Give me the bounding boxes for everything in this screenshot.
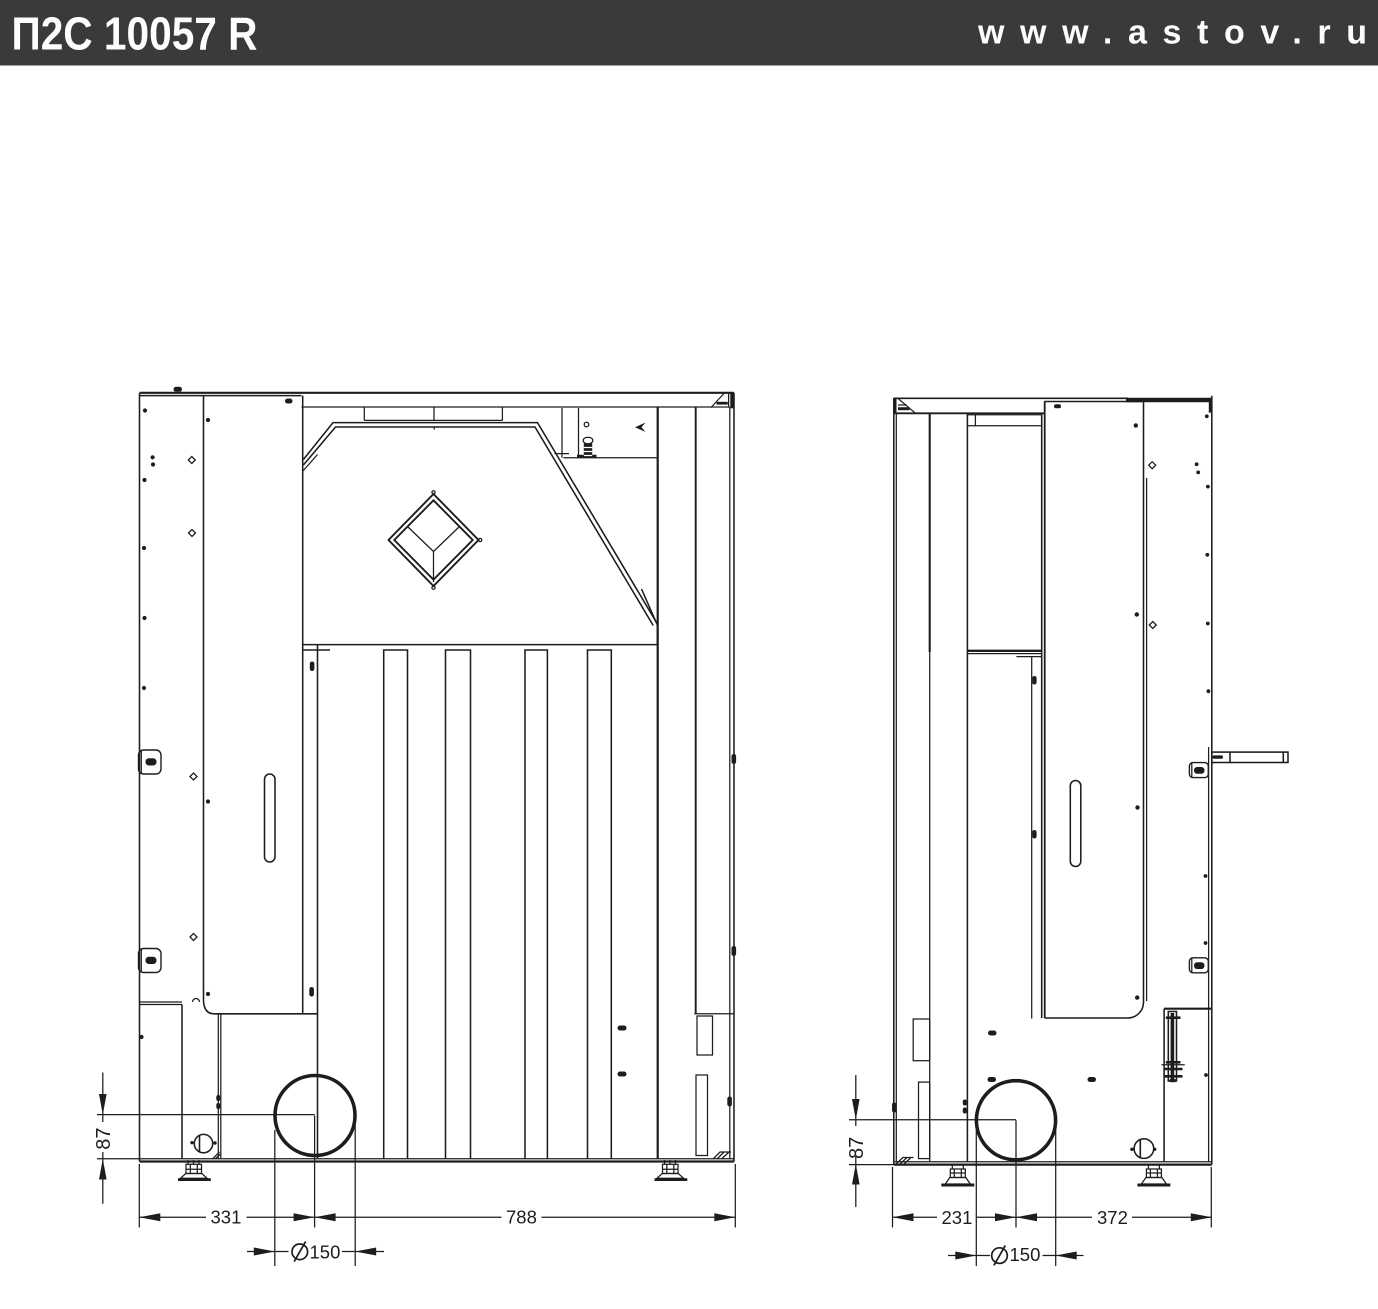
svg-text:87: 87 (93, 1128, 115, 1150)
svg-text:231: 231 (942, 1207, 973, 1228)
svg-text:150: 150 (1010, 1244, 1041, 1265)
svg-text:П2С 10057 R: П2С 10057 R (12, 8, 258, 60)
svg-text:87: 87 (846, 1137, 868, 1159)
svg-text:331: 331 (211, 1207, 242, 1228)
svg-text:788: 788 (506, 1207, 537, 1228)
svg-text:372: 372 (1097, 1207, 1128, 1228)
svg-text:150: 150 (310, 1242, 341, 1263)
